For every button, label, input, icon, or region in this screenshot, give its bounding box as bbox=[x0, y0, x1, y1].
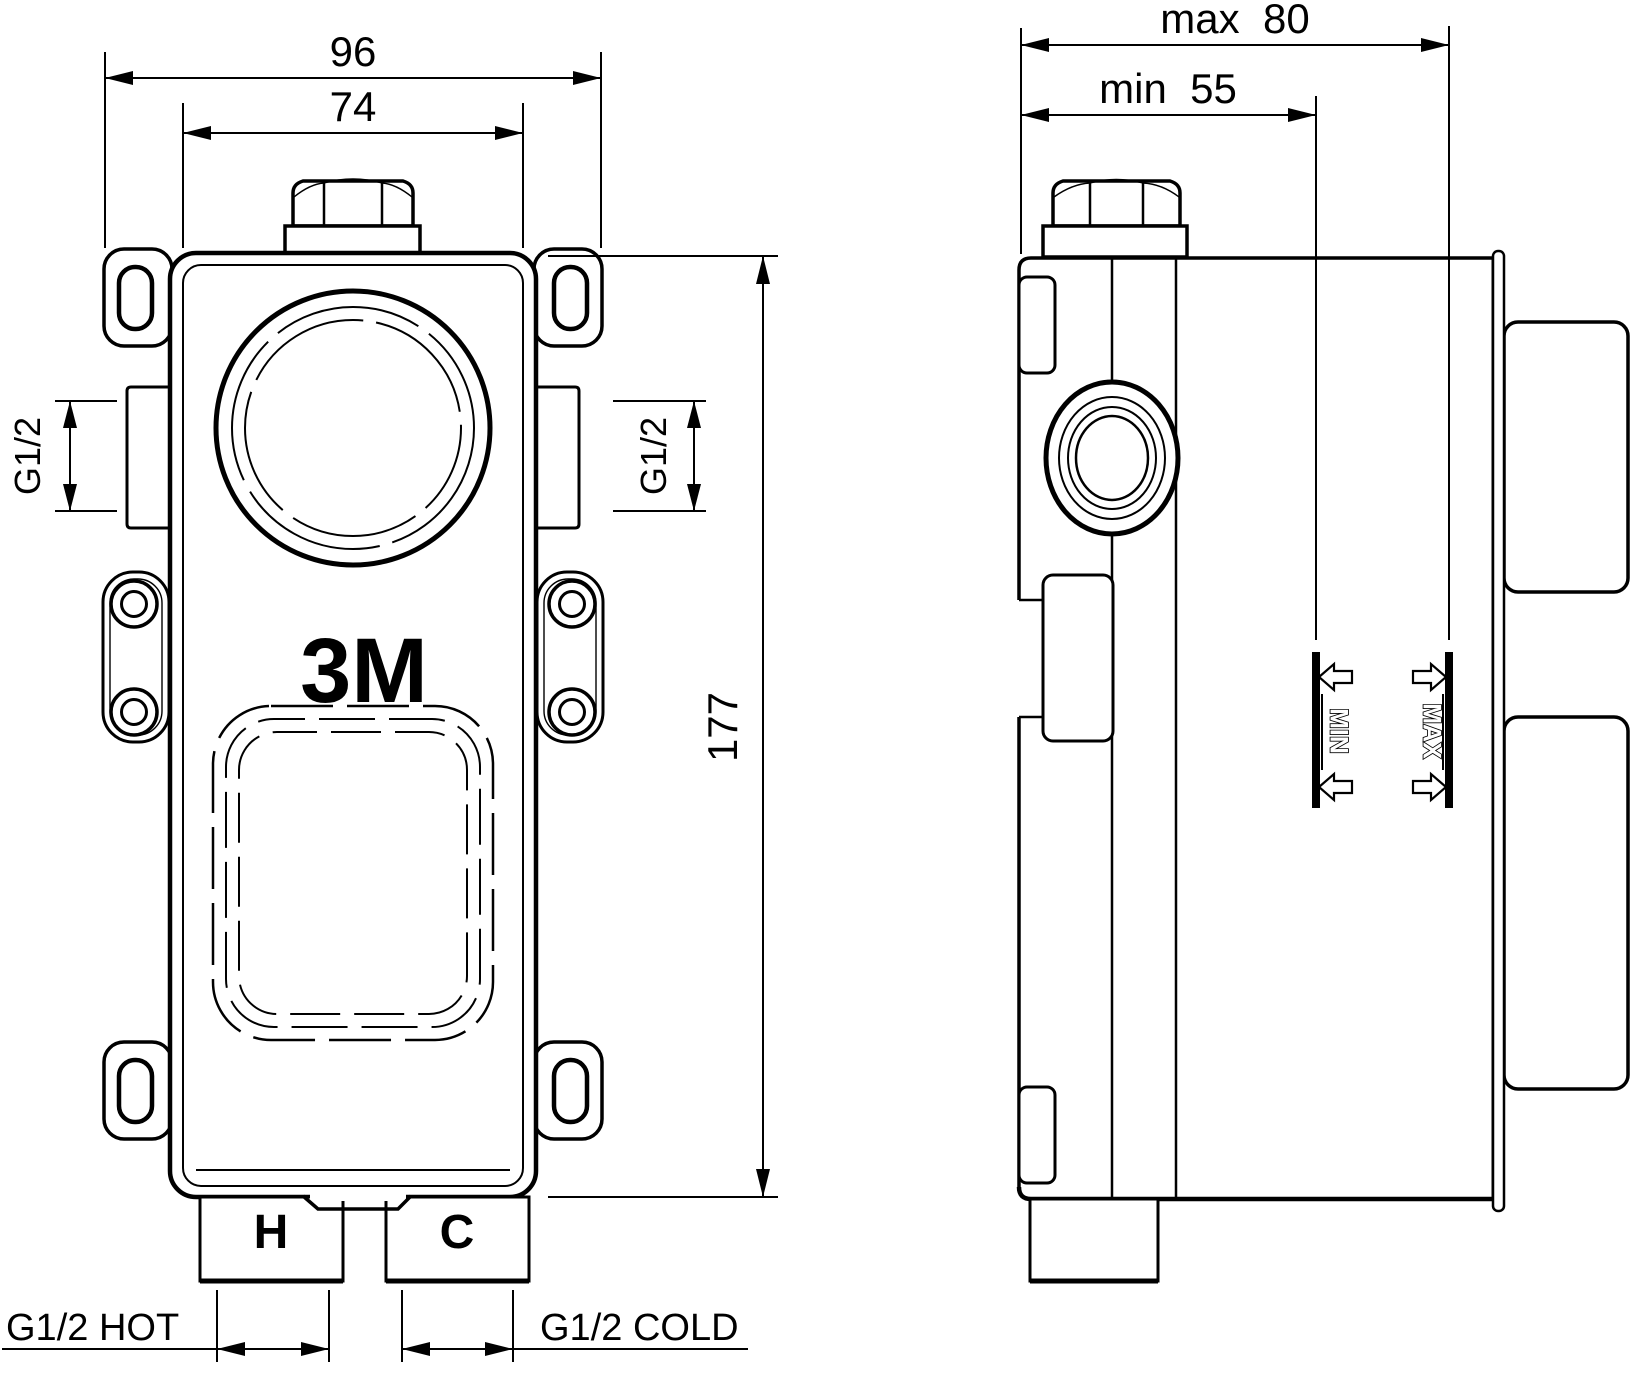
max-marker: MAX bbox=[1413, 652, 1449, 808]
hex-nut-front bbox=[285, 179, 420, 257]
clip-top bbox=[1019, 277, 1055, 373]
dim-width-96-label: 96 bbox=[330, 28, 377, 75]
bottom-port-side bbox=[1030, 1199, 1158, 1281]
dim-cold-port: G1/2 COLD bbox=[402, 1290, 748, 1362]
dim-depth-min: min 55 bbox=[1021, 65, 1316, 640]
upper-block bbox=[1504, 322, 1628, 592]
side-view: max 80 min 55 MIN MAX bbox=[1019, 0, 1628, 1281]
mounting-bracket-right bbox=[537, 572, 603, 742]
side-circle-port bbox=[1046, 382, 1178, 534]
min-arrow-icon bbox=[1319, 774, 1352, 800]
min-arrow-icon bbox=[1319, 664, 1352, 690]
hot-port-letter: H bbox=[254, 1206, 289, 1259]
dim-hot-port: G1/2 HOT bbox=[2, 1290, 329, 1362]
mounting-ear-top-left bbox=[104, 249, 172, 346]
cold-label: G1/2 COLD bbox=[540, 1307, 739, 1349]
dim-height-177-label: 177 bbox=[699, 692, 746, 762]
dim-depth-max-label: max 80 bbox=[1160, 0, 1309, 42]
dim-width-74-label: 74 bbox=[330, 83, 377, 130]
mounting-bracket-left bbox=[103, 572, 169, 742]
side-port-left bbox=[127, 387, 170, 528]
dim-depth-min-label: min 55 bbox=[1099, 65, 1237, 112]
lower-block bbox=[1504, 717, 1628, 1089]
mounting-ear-top-right bbox=[534, 249, 602, 346]
max-arrow-icon bbox=[1413, 774, 1446, 800]
clip-bottom bbox=[1019, 1087, 1055, 1183]
thread-dim-right-label: G1/2 bbox=[633, 417, 674, 495]
side-port-right bbox=[536, 387, 579, 528]
cold-port-letter: C bbox=[440, 1206, 475, 1259]
technical-drawing-page: 3M H C 96 bbox=[0, 0, 1650, 1376]
mounting-ear-bottom-right bbox=[534, 1042, 602, 1139]
thread-dim-left-label: G1/2 bbox=[7, 417, 48, 495]
hex-nut-side bbox=[1043, 180, 1187, 258]
thread-dim-right: G1/2 bbox=[613, 401, 706, 511]
bracket-side bbox=[1043, 575, 1113, 741]
min-label: MIN bbox=[1324, 708, 1352, 754]
thread-dim-left: G1/2 bbox=[7, 401, 117, 511]
technical-drawing-svg: 3M H C 96 bbox=[0, 0, 1650, 1376]
mounting-ear-bottom-left bbox=[104, 1042, 172, 1139]
max-label: MAX bbox=[1417, 703, 1445, 759]
wall-plate bbox=[1493, 251, 1504, 1211]
min-marker: MIN bbox=[1316, 652, 1352, 808]
front-view: 3M H C 96 bbox=[2, 28, 778, 1362]
max-arrow-icon bbox=[1413, 664, 1446, 690]
notch-mask bbox=[310, 1192, 406, 1201]
hot-label: G1/2 HOT bbox=[6, 1307, 179, 1349]
body-outline bbox=[170, 253, 536, 1197]
